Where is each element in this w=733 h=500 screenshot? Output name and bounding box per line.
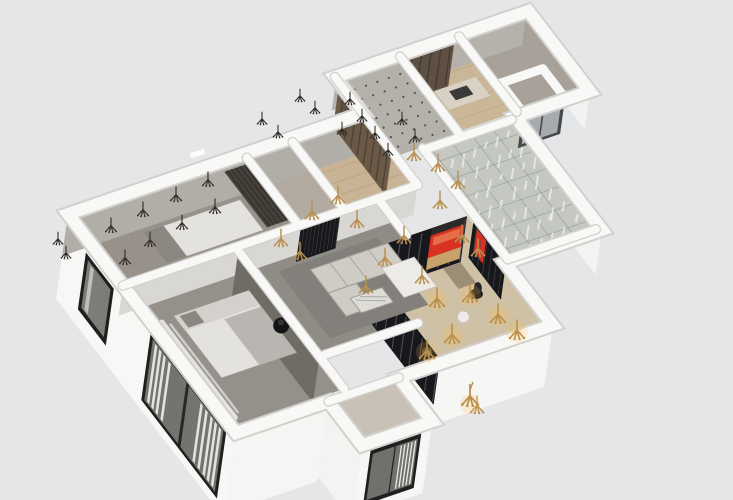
apartment-3d-floorplan bbox=[0, 0, 733, 500]
stool bbox=[457, 311, 469, 323]
screenshot-root: 3D isometric cutaway rendering of an apa… bbox=[0, 0, 733, 500]
